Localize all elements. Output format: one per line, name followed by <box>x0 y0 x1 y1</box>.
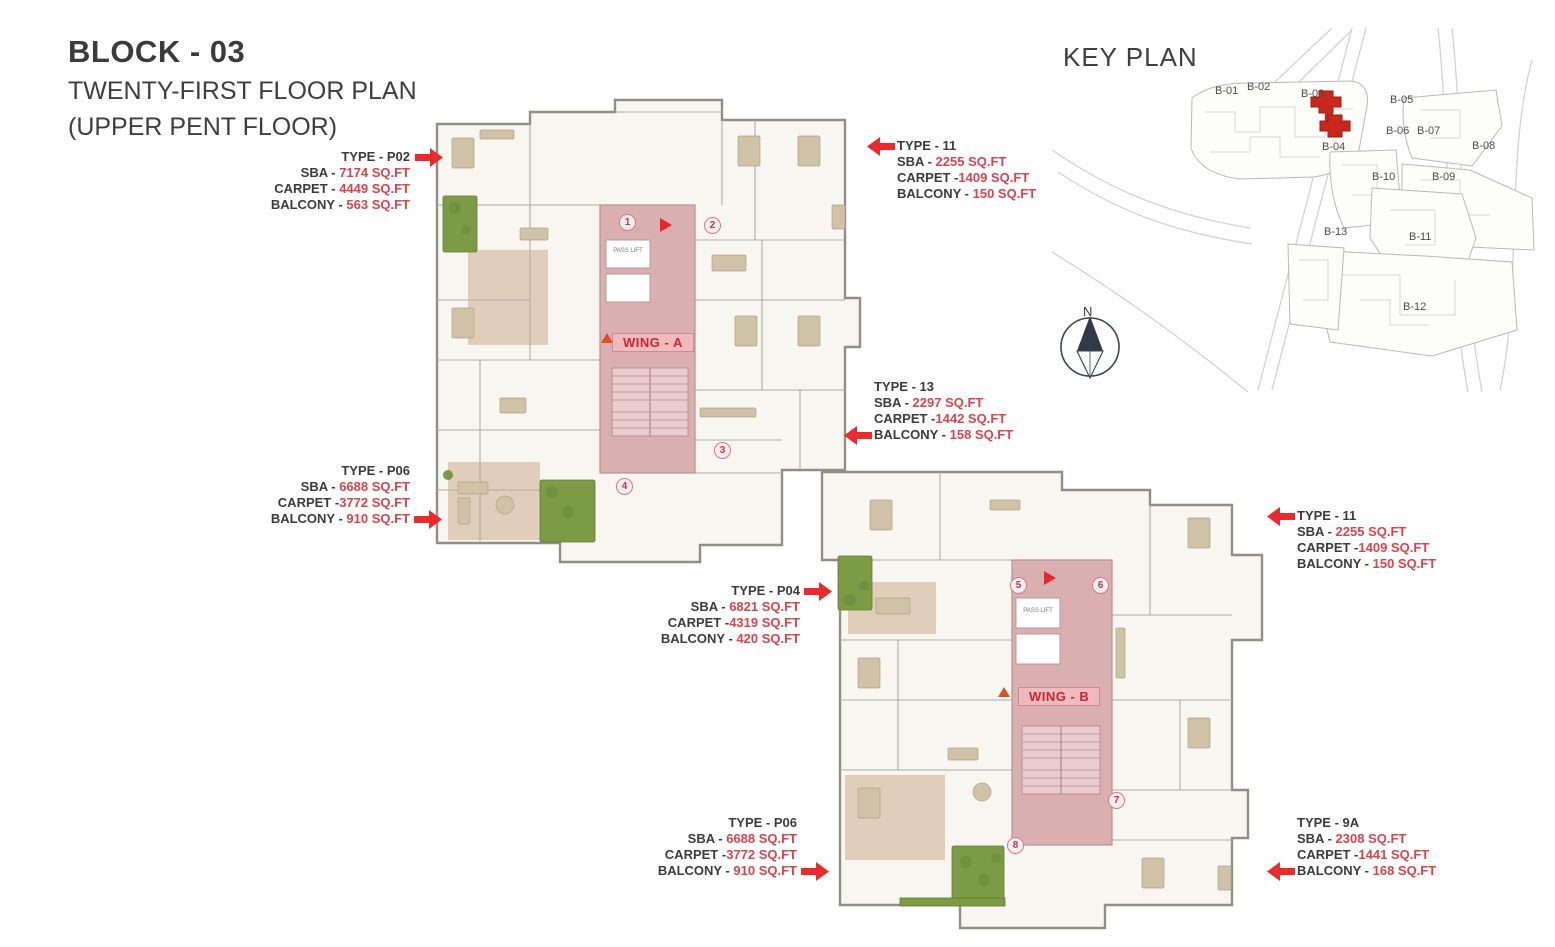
spec-row: CARPET -3772 SQ.FT <box>612 847 797 863</box>
spec-row: BALCONY - 150 SQ.FT <box>1297 556 1436 572</box>
spec-label: SBA - <box>691 599 730 614</box>
unit-marker-5: 5 <box>1010 577 1027 594</box>
pointer-arrow-right-icon <box>414 147 444 168</box>
spec-row: CARPET - 4449 SQ.FT <box>225 181 410 197</box>
spec-value: 1441 SQ.FT <box>1358 847 1429 862</box>
spec-row: BALCONY - 158 SQ.FT <box>874 427 1013 443</box>
spec-value: 3772 SQ.FT <box>726 847 797 862</box>
wing-b-stairs <box>1022 726 1100 794</box>
unit-marker-4: 4 <box>616 478 633 495</box>
keyplan-label-b13: B-13 <box>1324 226 1347 238</box>
spec-value: 3772 SQ.FT <box>339 495 410 510</box>
pointer-arrow-right-icon <box>803 581 833 602</box>
spec-label: SBA - <box>301 165 340 180</box>
floor-subtitle: (UPPER PENT FLOOR) <box>68 113 417 142</box>
spec-value: 1442 SQ.FT <box>935 411 1006 426</box>
keyplan-label-b07: B-07 <box>1417 125 1440 137</box>
spec-row: CARPET -1441 SQ.FT <box>1297 847 1436 863</box>
unit-type-label: TYPE - P02 <box>225 149 410 165</box>
spec-value: 168 SQ.FT <box>1373 863 1437 878</box>
keyplan-label-b03: B-03 <box>1301 88 1324 100</box>
spec-label: CARPET - <box>668 615 729 630</box>
spec-row: BALCONY - 910 SQ.FT <box>225 511 410 527</box>
wing-a-stairs <box>612 368 688 436</box>
spec-value: 150 SQ.FT <box>1373 556 1437 571</box>
spec-label: BALCONY - <box>1297 863 1373 878</box>
spec-value: 1409 SQ.FT <box>958 170 1029 185</box>
floor-title: TWENTY-FIRST FLOOR PLAN <box>68 77 417 106</box>
keyplan-title: KEY PLAN <box>1063 42 1198 73</box>
unit-marker-6: 6 <box>1092 577 1109 594</box>
north-arrow-icon <box>1061 316 1119 378</box>
pointer-arrow-left-icon <box>1266 506 1296 527</box>
unit-marker-3: 3 <box>714 442 731 459</box>
spec-row: SBA - 6688 SQ.FT <box>225 479 410 495</box>
unit-type-label: TYPE - 11 <box>1297 508 1436 524</box>
block-title: BLOCK - 03 <box>68 34 417 70</box>
spec-row: CARPET -4319 SQ.FT <box>615 615 800 631</box>
key-plan-map <box>1052 28 1534 392</box>
spec-label: CARPET - <box>278 495 339 510</box>
spec-label: CARPET - <box>665 847 726 862</box>
spec-label: CARPET - <box>1297 540 1358 555</box>
wing-a-label: WING - A <box>612 333 694 352</box>
spec-row: CARPET -3772 SQ.FT <box>225 495 410 511</box>
lift-label: PASS LIFT <box>1016 608 1060 614</box>
spec-label: BALCONY - <box>271 197 347 212</box>
spec-value: 910 SQ.FT <box>733 863 797 878</box>
pointer-arrow-right-icon <box>413 509 443 530</box>
pointer-arrow-left-icon <box>1266 861 1296 882</box>
spec-row: SBA - 2308 SQ.FT <box>1297 831 1436 847</box>
spec-value: 910 SQ.FT <box>346 511 410 526</box>
spec-value: 2297 SQ.FT <box>913 395 984 410</box>
spec-label: BALCONY - <box>1297 556 1373 571</box>
spec-row: SBA - 6821 SQ.FT <box>615 599 800 615</box>
spec-label: SBA - <box>897 154 936 169</box>
annotation-type-11-right: TYPE - 11 SBA - 2255 SQ.FT CARPET -1409 … <box>1297 508 1436 572</box>
spec-value: 6821 SQ.FT <box>729 599 800 614</box>
annotation-type-p04: TYPE - P04 SBA - 6821 SQ.FT CARPET -4319… <box>615 583 800 647</box>
annotation-type-9a: TYPE - 9A SBA - 2308 SQ.FT CARPET -1441 … <box>1297 815 1436 879</box>
annotation-type-p02: TYPE - P02 SBA - 7174 SQ.FT CARPET - 444… <box>225 149 410 213</box>
annotation-type-p06-left: TYPE - P06 SBA - 6688 SQ.FT CARPET -3772… <box>225 463 410 527</box>
unit-type-label: TYPE - P04 <box>615 583 800 599</box>
spec-row: BALCONY - 563 SQ.FT <box>225 197 410 213</box>
north-label: N <box>1083 304 1092 319</box>
spec-value: 4319 SQ.FT <box>729 615 800 630</box>
spec-value: 6688 SQ.FT <box>339 479 410 494</box>
spec-row: SBA - 2297 SQ.FT <box>874 395 1013 411</box>
spec-row: CARPET -1442 SQ.FT <box>874 411 1013 427</box>
spec-label: CARPET - <box>1297 847 1358 862</box>
spec-value: 4449 SQ.FT <box>339 181 410 196</box>
spec-label: SBA - <box>688 831 727 846</box>
spec-label: BALCONY - <box>271 511 347 526</box>
spec-label: SBA - <box>874 395 913 410</box>
keyplan-label-b05: B-05 <box>1390 94 1413 106</box>
annotation-type-13: TYPE - 13 SBA - 2297 SQ.FT CARPET -1442 … <box>874 379 1013 443</box>
spec-value: 2255 SQ.FT <box>1336 524 1407 539</box>
keyplan-label-b10: B-10 <box>1372 171 1395 183</box>
spec-row: SBA - 2255 SQ.FT <box>1297 524 1436 540</box>
unit-type-label: TYPE - P06 <box>225 463 410 479</box>
unit-marker-7: 7 <box>1108 792 1125 809</box>
spec-row: SBA - 6688 SQ.FT <box>612 831 797 847</box>
spec-label: BALCONY - <box>874 427 950 442</box>
spec-value: 2308 SQ.FT <box>1336 831 1407 846</box>
spec-label: BALCONY - <box>897 186 973 201</box>
keyplan-label-b02: B-02 <box>1247 81 1270 93</box>
spec-value: 563 SQ.FT <box>346 197 410 212</box>
spec-label: SBA - <box>1297 524 1336 539</box>
pointer-arrow-left-icon <box>866 136 896 157</box>
spec-row: CARPET -1409 SQ.FT <box>1297 540 1436 556</box>
spec-value: 2255 SQ.FT <box>936 154 1007 169</box>
wing-b-label: WING - B <box>1018 687 1100 706</box>
wing-a-plan <box>437 100 860 562</box>
unit-type-label: TYPE - 13 <box>874 379 1013 395</box>
keyplan-label-b12: B-12 <box>1403 301 1426 313</box>
unit-type-label: TYPE - P06 <box>612 815 797 831</box>
spec-label: SBA - <box>1297 831 1336 846</box>
spec-value: 7174 SQ.FT <box>339 165 410 180</box>
spec-value: 158 SQ.FT <box>950 427 1014 442</box>
unit-marker-1: 1 <box>619 214 636 231</box>
spec-row: BALCONY - 168 SQ.FT <box>1297 863 1436 879</box>
spec-row: BALCONY - 150 SQ.FT <box>897 186 1036 202</box>
page-title: BLOCK - 03 TWENTY-FIRST FLOOR PLAN (UPPE… <box>68 34 417 142</box>
spec-row: CARPET -1409 SQ.FT <box>897 170 1036 186</box>
spec-value: 1409 SQ.FT <box>1358 540 1429 555</box>
spec-label: CARPET - <box>897 170 958 185</box>
spec-label: CARPET - <box>874 411 935 426</box>
unit-marker-2: 2 <box>704 217 721 234</box>
annotation-type-p06-bottom: TYPE - P06 SBA - 6688 SQ.FT CARPET -3772… <box>612 815 797 879</box>
spec-value: 150 SQ.FT <box>973 186 1037 201</box>
lift-label: PASS LIFT <box>606 248 650 254</box>
pointer-arrow-left-icon <box>843 425 873 446</box>
keyplan-label-b04: B-04 <box>1322 141 1345 153</box>
spec-value: 6688 SQ.FT <box>726 831 797 846</box>
spec-label: CARPET - <box>274 181 339 196</box>
unit-marker-8: 8 <box>1007 837 1024 854</box>
spec-label: SBA - <box>301 479 340 494</box>
unit-type-label: TYPE - 11 <box>897 138 1036 154</box>
spec-value: 420 SQ.FT <box>736 631 800 646</box>
annotation-type-11-top: TYPE - 11 SBA - 2255 SQ.FT CARPET -1409 … <box>897 138 1036 202</box>
keyplan-label-b01: B-01 <box>1215 85 1238 97</box>
spec-row: SBA - 7174 SQ.FT <box>225 165 410 181</box>
spec-label: BALCONY - <box>661 631 737 646</box>
spec-row: SBA - 2255 SQ.FT <box>897 154 1036 170</box>
unit-type-label: TYPE - 9A <box>1297 815 1436 831</box>
keyplan-label-b08: B-08 <box>1472 140 1495 152</box>
pointer-arrow-right-icon <box>800 861 830 882</box>
floor-plan-page: BLOCK - 03 TWENTY-FIRST FLOOR PLAN (UPPE… <box>0 0 1555 947</box>
spec-row: BALCONY - 910 SQ.FT <box>612 863 797 879</box>
spec-label: BALCONY - <box>658 863 734 878</box>
keyplan-label-b09: B-09 <box>1432 171 1455 183</box>
keyplan-label-b11: B-11 <box>1409 231 1431 243</box>
keyplan-label-b06: B-06 <box>1386 125 1409 137</box>
spec-row: BALCONY - 420 SQ.FT <box>615 631 800 647</box>
